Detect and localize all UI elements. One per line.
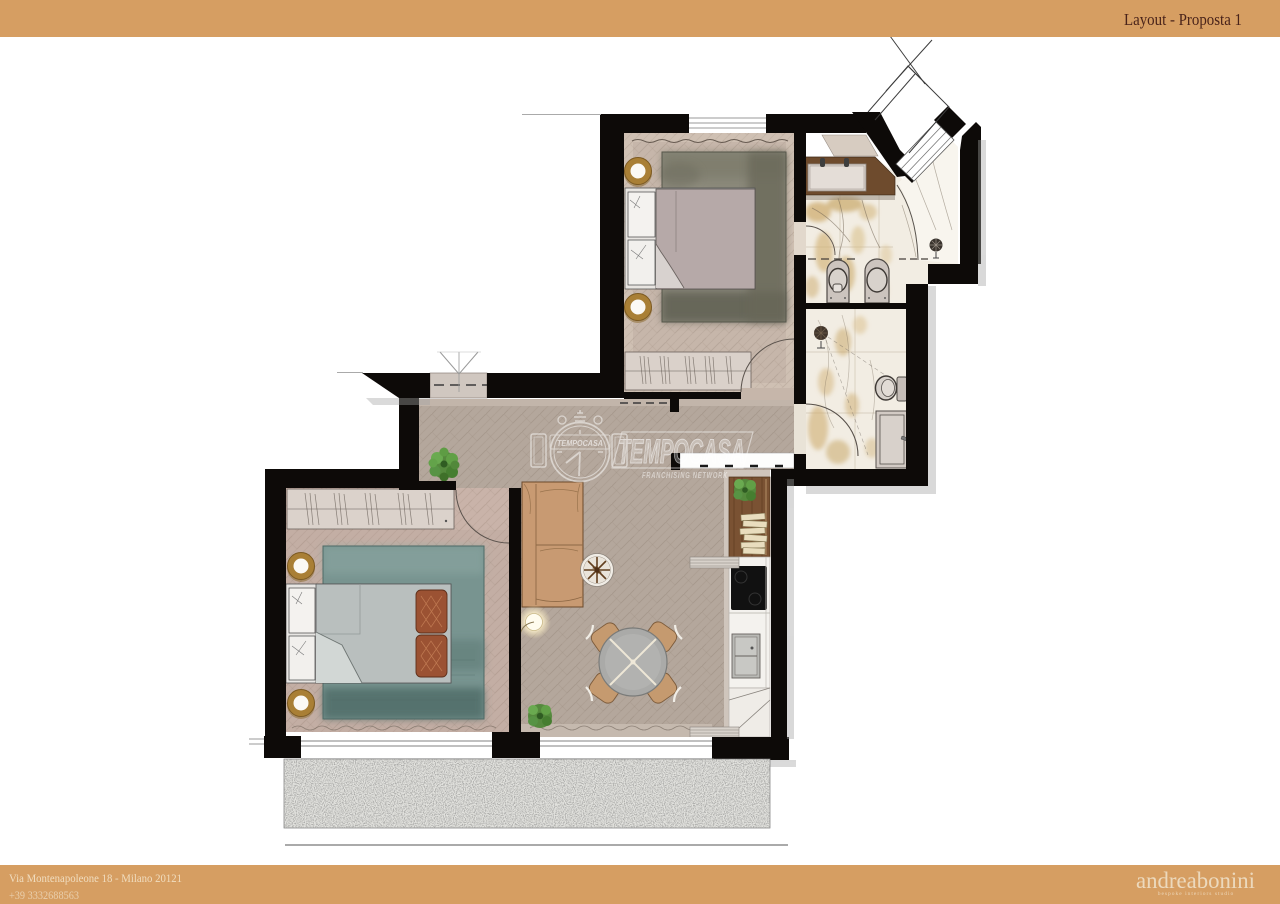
svg-text:bespoke interiors studio: bespoke interiors studio (1158, 891, 1235, 897)
svg-text:TEMPOCASA: TEMPOCASA (618, 433, 745, 471)
svg-text:+39 3332688563: +39 3332688563 (9, 888, 79, 902)
svg-text:Via Montenapoleone 18 - Milano: Via Montenapoleone 18 - Milano 20121 (9, 871, 182, 885)
svg-text:TEMPOCASA: TEMPOCASA (557, 439, 603, 448)
svg-text:Layout - Proposta 1: Layout - Proposta 1 (1124, 10, 1242, 29)
svg-text:FRANCHISING NETWORK: FRANCHISING NETWORK (642, 471, 728, 480)
svg-text:andreabonini: andreabonini (1136, 868, 1255, 893)
